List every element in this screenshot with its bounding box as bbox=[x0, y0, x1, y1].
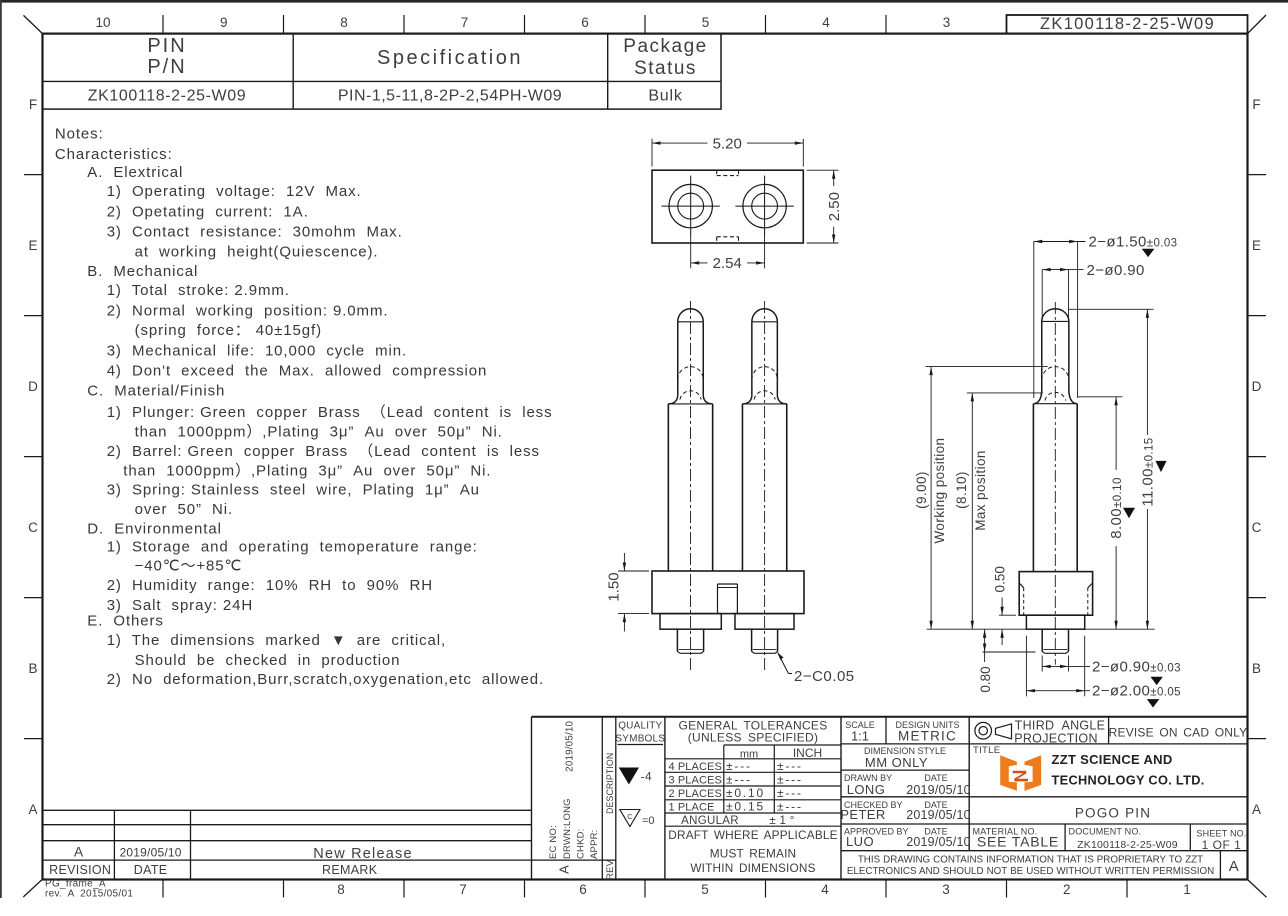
svg-text:Specification: Specification bbox=[377, 47, 523, 69]
svg-text:1: 1 bbox=[1183, 882, 1191, 897]
svg-text:at working height(Quiescence: at working height(Quiescence). bbox=[135, 244, 379, 261]
svg-text:3) Salt spray: 24H: 3) Salt spray: 24H bbox=[107, 597, 253, 614]
svg-text:ZK100118-2-25-W09: ZK100118-2-25-W09 bbox=[1077, 839, 1178, 851]
svg-text:=0: =0 bbox=[642, 815, 655, 827]
svg-text:3 PLACES: 3 PLACES bbox=[669, 774, 722, 786]
svg-text:Bulk: Bulk bbox=[648, 88, 683, 105]
svg-text:A: A bbox=[557, 865, 572, 874]
svg-text:0.80: 0.80 bbox=[978, 666, 993, 692]
svg-text:2 PLACES: 2 PLACES bbox=[669, 788, 722, 800]
svg-text:THIRD ANGLE: THIRD ANGLE bbox=[1015, 719, 1106, 733]
svg-text:1) The dimensions marked ▼: 1) The dimensions marked ▼ are critical, bbox=[107, 632, 446, 649]
svg-text:Working position: Working position bbox=[932, 438, 947, 544]
svg-text:2) Humidity range: 10% RH: 2) Humidity range: 10% RH to 90% RH bbox=[107, 577, 433, 594]
svg-text:2) No deformation,Burr,scrat: 2) No deformation,Burr,scratch,oxygenati… bbox=[107, 671, 544, 688]
svg-text:±---: ±--- bbox=[777, 772, 803, 786]
svg-text:APPR:: APPR: bbox=[589, 829, 600, 859]
svg-text:2019/05/10: 2019/05/10 bbox=[565, 720, 576, 771]
svg-text:±0.10: ±0.10 bbox=[726, 786, 765, 800]
svg-text:(9.00): (9.00) bbox=[914, 471, 929, 509]
svg-text:1 OF 1: 1 OF 1 bbox=[1202, 838, 1242, 852]
svg-text:rev. A 2015/05/01: rev. A 2015/05/01 bbox=[45, 889, 133, 900]
svg-text:±---: ±--- bbox=[777, 759, 803, 773]
svg-text:E: E bbox=[28, 238, 37, 253]
svg-text:1) Plunger: Green copper Br: 1) Plunger: Green copper Brass （Lead con… bbox=[107, 404, 553, 421]
svg-text:P/N: P/N bbox=[147, 56, 186, 78]
svg-text:INCH: INCH bbox=[793, 746, 822, 760]
svg-text:A: A bbox=[1252, 802, 1261, 817]
svg-text:than 1000ppm）,Plating 3μ” A: than 1000ppm）,Plating 3μ” Au over 50μ” N… bbox=[135, 424, 503, 441]
svg-text:REVISION: REVISION bbox=[49, 863, 111, 877]
svg-text:DATE: DATE bbox=[134, 863, 168, 877]
svg-text:2019/05/10: 2019/05/10 bbox=[906, 808, 971, 822]
svg-text:1:1: 1:1 bbox=[851, 729, 869, 744]
svg-text:ANGULAR: ANGULAR bbox=[681, 815, 739, 827]
svg-text:C. Material/Finish: C. Material/Finish bbox=[87, 383, 225, 400]
svg-text:ZZT SCIENCE AND: ZZT SCIENCE AND bbox=[1052, 752, 1173, 767]
svg-text:5: 5 bbox=[701, 882, 709, 897]
svg-text:POGO PIN: POGO PIN bbox=[1075, 806, 1151, 821]
svg-text:REMARK: REMARK bbox=[322, 863, 378, 877]
svg-text:DOCUMENT NO.: DOCUMENT NO. bbox=[1069, 827, 1142, 837]
svg-text:1) Storage and operating t: 1) Storage and operating temoperature ra… bbox=[107, 538, 478, 555]
svg-text:A: A bbox=[28, 802, 37, 817]
svg-text:C: C bbox=[627, 812, 633, 821]
svg-text:1) Operating voltage: 12V: 1) Operating voltage: 12V Max. bbox=[107, 183, 362, 200]
svg-text:SEE TABLE: SEE TABLE bbox=[977, 834, 1059, 850]
svg-text:than 1000ppm）,Plating 3μ” A: than 1000ppm）,Plating 3μ” Au over 50μ” N… bbox=[123, 462, 491, 479]
svg-text:Characteristics:: Characteristics: bbox=[55, 146, 173, 163]
svg-text:3) Contact resistance: 30mo: 3) Contact resistance: 30mohm Max. bbox=[107, 224, 403, 241]
svg-text:Max position: Max position bbox=[973, 450, 988, 531]
svg-text:2: 2 bbox=[1063, 882, 1071, 897]
svg-text:Notes:: Notes: bbox=[55, 126, 104, 143]
svg-text:A: A bbox=[1229, 858, 1239, 875]
svg-text:Package: Package bbox=[623, 36, 707, 57]
svg-text:WITHIN DIMENSIONS: WITHIN DIMENSIONS bbox=[690, 861, 815, 875]
svg-text:DRWN:LONG: DRWN:LONG bbox=[562, 798, 573, 859]
svg-text:ELECTRONICS AND SHOULD NOT BE: ELECTRONICS AND SHOULD NOT BE USED WITHO… bbox=[847, 866, 1214, 877]
svg-text:8: 8 bbox=[337, 882, 345, 897]
svg-text:D: D bbox=[28, 379, 38, 394]
svg-text:9: 9 bbox=[220, 15, 228, 30]
svg-text:B: B bbox=[28, 661, 37, 676]
svg-text:DRAFT WHERE APPLICABLE: DRAFT WHERE APPLICABLE bbox=[668, 828, 837, 842]
svg-text:±---: ±--- bbox=[777, 800, 803, 814]
svg-text:MM ONLY: MM ONLY bbox=[865, 755, 928, 770]
svg-text:2019/05/10: 2019/05/10 bbox=[906, 835, 971, 849]
svg-text:DATE: DATE bbox=[924, 773, 947, 783]
svg-text:2) Barrel: Green copper Bra: 2) Barrel: Green copper Brass （Lead cont… bbox=[107, 443, 540, 460]
svg-text:1 PLACE: 1 PLACE bbox=[669, 802, 715, 814]
svg-text:METRIC: METRIC bbox=[898, 729, 957, 744]
svg-text:E. Others: E. Others bbox=[87, 613, 164, 630]
svg-text:PIN: PIN bbox=[147, 35, 186, 57]
svg-text:-4: -4 bbox=[641, 770, 653, 784]
svg-text:C: C bbox=[28, 520, 38, 535]
svg-text:4 PLACES: 4 PLACES bbox=[669, 761, 722, 773]
svg-text:C: C bbox=[1252, 520, 1262, 535]
svg-text:over 50” Ni.: over 50” Ni. bbox=[135, 501, 233, 518]
svg-text:(UNLESS SPECIFIED): (UNLESS SPECIFIED) bbox=[688, 730, 819, 744]
svg-text:2−C0.05: 2−C0.05 bbox=[794, 668, 855, 685]
svg-text:(8.10): (8.10) bbox=[954, 471, 969, 509]
svg-text:TECHNOLOGY CO. LTD.: TECHNOLOGY CO. LTD. bbox=[1052, 773, 1205, 788]
svg-text:1.50: 1.50 bbox=[606, 572, 623, 601]
svg-text:TITLE: TITLE bbox=[973, 745, 1000, 756]
svg-text:B. Mechanical: B. Mechanical bbox=[87, 263, 198, 280]
svg-text:D: D bbox=[1252, 379, 1262, 394]
svg-text:PROJECTION: PROJECTION bbox=[1014, 732, 1098, 746]
svg-text:6: 6 bbox=[581, 15, 589, 30]
svg-text:± 1 °: ± 1 ° bbox=[769, 815, 794, 827]
svg-text:PIN-1,5-11,8-2P-2,54PH-W09: PIN-1,5-11,8-2P-2,54PH-W09 bbox=[338, 88, 562, 105]
svg-text:5.20: 5.20 bbox=[713, 135, 742, 152]
svg-text:F: F bbox=[29, 97, 37, 112]
svg-text:7: 7 bbox=[461, 15, 469, 30]
svg-text:2.54: 2.54 bbox=[713, 255, 742, 272]
svg-text:5: 5 bbox=[702, 15, 710, 30]
svg-text:REVISE ON CAD ONLY: REVISE ON CAD ONLY bbox=[1109, 726, 1248, 740]
svg-text:6: 6 bbox=[579, 882, 587, 897]
svg-text:±0.15: ±0.15 bbox=[726, 800, 765, 814]
svg-text:PETER: PETER bbox=[840, 807, 885, 822]
svg-text:±---: ±--- bbox=[726, 759, 752, 773]
svg-text:−40℃～+85℃: −40℃～+85℃ bbox=[135, 558, 243, 575]
svg-text:A. Elextrical: A. Elextrical bbox=[87, 164, 183, 181]
svg-text:2) Normal working position:: 2) Normal working position: 9.0mm. bbox=[107, 302, 389, 319]
svg-text:Status: Status bbox=[634, 58, 697, 79]
svg-text:ZK100118-2-25-W09: ZK100118-2-25-W09 bbox=[1040, 15, 1215, 33]
svg-text:2−ø0.90: 2−ø0.90 bbox=[1087, 262, 1145, 279]
svg-text:2019/05/10: 2019/05/10 bbox=[120, 846, 182, 860]
svg-text:D. Environmental: D. Environmental bbox=[87, 520, 222, 537]
svg-text:New Release: New Release bbox=[313, 846, 412, 862]
svg-text:3) Mechanical life: 10,000: 3) Mechanical life: 10,000 cycle min. bbox=[107, 343, 407, 360]
svg-text:SHEET NO.: SHEET NO. bbox=[1196, 829, 1246, 839]
svg-text:E: E bbox=[1252, 238, 1261, 253]
svg-text:A: A bbox=[74, 844, 84, 860]
svg-text:±---: ±--- bbox=[777, 786, 803, 800]
svg-text:THIS DRAWING CONTAINS INFORMAT: THIS DRAWING CONTAINS INFORMATION THAT I… bbox=[858, 855, 1203, 866]
svg-text:8: 8 bbox=[340, 15, 348, 30]
svg-text:4: 4 bbox=[821, 882, 829, 897]
svg-text:EC NO:: EC NO: bbox=[548, 825, 559, 859]
svg-text:1) Total stroke: 2.9mm.: 1) Total stroke: 2.9mm. bbox=[107, 282, 290, 299]
svg-text:B: B bbox=[1252, 661, 1261, 676]
svg-text:7: 7 bbox=[459, 882, 467, 897]
svg-text:3: 3 bbox=[942, 882, 950, 897]
svg-text:F: F bbox=[1252, 97, 1260, 112]
svg-text:REV: REV bbox=[605, 859, 616, 880]
svg-text:SYMBOLS: SYMBOLS bbox=[615, 734, 665, 745]
svg-text:QUALITY: QUALITY bbox=[618, 721, 662, 732]
svg-text:LONG: LONG bbox=[847, 782, 885, 797]
svg-text:LUO: LUO bbox=[846, 834, 874, 849]
svg-text:MUST REMAIN: MUST REMAIN bbox=[710, 847, 797, 861]
svg-text:2019/05/10: 2019/05/10 bbox=[906, 783, 971, 797]
svg-text:3: 3 bbox=[943, 15, 951, 30]
svg-text:3) Spring: Stainless steel: 3) Spring: Stainless steel wire, Plating… bbox=[107, 482, 480, 499]
svg-text:4: 4 bbox=[822, 15, 830, 30]
svg-text:±---: ±--- bbox=[726, 772, 752, 786]
svg-text:Should be checked in produ: Should be checked in production bbox=[135, 652, 401, 669]
svg-text:DESCRIPTION: DESCRIPTION bbox=[605, 753, 615, 814]
svg-text:(spring force： 40±15gf): (spring force： 40±15gf) bbox=[135, 322, 322, 339]
svg-text:10: 10 bbox=[95, 15, 110, 30]
svg-text:0.50: 0.50 bbox=[992, 566, 1007, 592]
svg-text:CHKD:: CHKD: bbox=[576, 828, 587, 859]
svg-text:4) Don't exceed the Max.: 4) Don't exceed the Max. allowed compres… bbox=[107, 362, 488, 379]
svg-text:2.50: 2.50 bbox=[826, 192, 843, 221]
svg-text:2) Opetating current: 1A.: 2) Opetating current: 1A. bbox=[107, 203, 309, 220]
svg-text:ZK100118-2-25-W09: ZK100118-2-25-W09 bbox=[88, 88, 246, 105]
